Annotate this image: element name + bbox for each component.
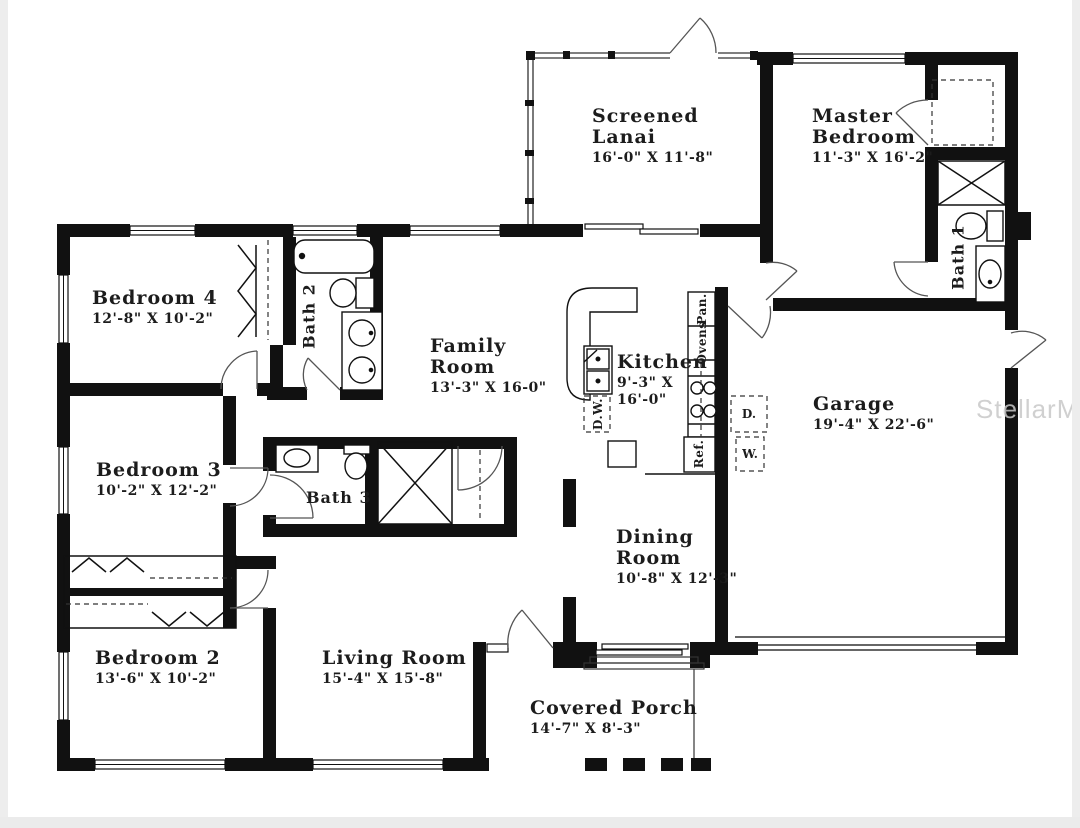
room-name: Bedroom [812,127,933,148]
room-name: Garage [813,394,934,415]
room-dims: 10'-8" X 12'-3" [616,571,737,588]
room-name: Dining [616,527,737,548]
room-label-bedroom-4: Bedroom 4 12'-8" X 10'-2" [92,288,218,328]
garage-door [735,637,1005,650]
page-edge-right [1072,0,1080,828]
room-name: Covered Porch [530,698,698,719]
ovens-label: Ovens [695,321,709,364]
bath-3-label: Bath 3 [306,488,372,507]
bath-2-label: Bath 2 [300,283,319,349]
room-dims: 16'-0" X 11'-8" [592,150,713,167]
pantry-label: Pan. [695,293,709,324]
bath-1-label: Bath 1 [949,224,968,290]
room-name: Bedroom 3 [96,460,222,481]
room-label-living-room: Living Room 15'-4" X 15'-8" [322,648,467,688]
refrigerator-label: Ref. [692,440,706,469]
room-name: Family [430,336,547,357]
room-name: Room [430,357,547,378]
room-name: Bedroom 4 [92,288,218,309]
room-label-family-room: Family Room 13'-3" X 16-0" [430,336,547,397]
room-dims: 11'-3" X 16'-2" [812,150,933,167]
room-dims: 14'-7" X 8'-3" [530,721,698,738]
stellar-mls-watermark: StellarMLS [976,394,1080,425]
room-dims: 13'-3" X 16-0" [430,380,547,397]
room-label-dining-room: Dining Room 10'-8" X 12'-3" [616,527,737,588]
room-dims: 15'-4" X 15'-8" [322,671,467,688]
room-label-master-bedroom: Master Bedroom 11'-3" X 16'-2" [812,106,933,167]
room-label-covered-porch: Covered Porch 14'-7" X 8'-3" [530,698,698,738]
room-label-screened-lanai: Screened Lanai 16'-0" X 11'-8" [592,106,713,167]
room-dims: 13'-6" X 10'-2" [95,671,221,688]
room-name: Master [812,106,933,127]
washer-label: W. [742,447,758,461]
room-dims: 19'-4" X 22'-6" [813,417,934,434]
room-name: Screened [592,106,713,127]
room-name: Bedroom 2 [95,648,221,669]
room-dims: 9'-3" X [617,375,708,392]
room-dims: 16'-0" [617,392,708,408]
room-dims: 12'-8" X 10'-2" [92,311,218,328]
page-edge-left [0,0,8,828]
room-label-bedroom-2: Bedroom 2 13'-6" X 10'-2" [95,648,221,688]
room-label-bedroom-3: Bedroom 3 10'-2" X 12'-2" [96,460,222,500]
room-dims: 10'-2" X 12'-2" [96,483,222,500]
page-edge-bottom [0,817,1080,828]
room-name: Lanai [592,127,713,148]
floor-plan-page: Screened Lanai 16'-0" X 11'-8" Master Be… [0,0,1080,828]
room-name: Room [616,548,737,569]
room-label-garage: Garage 19'-4" X 22'-6" [813,394,934,434]
dishwasher-label: D.W. [591,398,605,430]
dryer-label: D. [742,407,756,421]
room-name: Living Room [322,648,467,669]
